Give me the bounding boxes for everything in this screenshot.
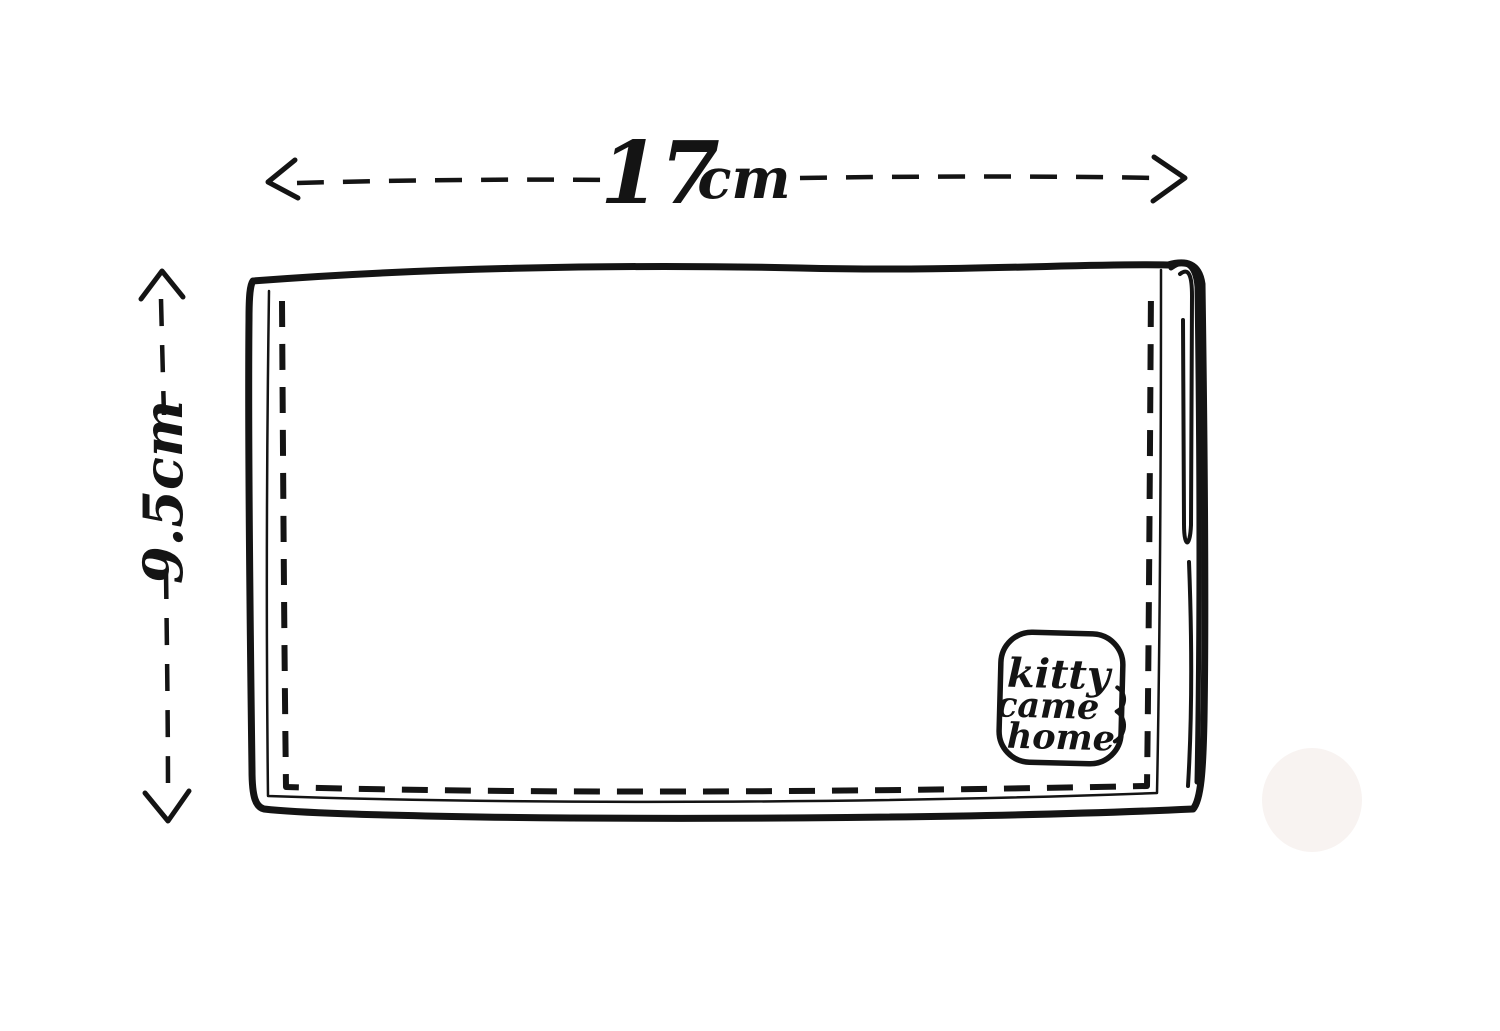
sketch-canvas: 17 cm 9.5cm kitty bbox=[0, 0, 1500, 1031]
logo-word-3: home bbox=[1006, 716, 1115, 760]
width-dimension-line: 17 cm bbox=[268, 123, 1185, 224]
arrow-up-icon bbox=[141, 271, 183, 299]
height-dimension-line: 9.5cm bbox=[131, 271, 195, 821]
height-dash-top-segment bbox=[161, 299, 164, 415]
wallet-dimension-diagram: 17 cm 9.5cm kitty bbox=[0, 0, 1500, 1031]
width-unit-label: cm bbox=[697, 146, 790, 212]
fold-crease-loop bbox=[1180, 272, 1192, 543]
width-dash-left-segment bbox=[297, 180, 612, 183]
arrow-down-icon bbox=[145, 791, 189, 821]
fold-crease-lower bbox=[1188, 562, 1191, 786]
height-value-label: 9.5cm bbox=[131, 400, 195, 584]
logo-badge: kitty came home bbox=[995, 631, 1127, 764]
width-dash-right-segment bbox=[800, 177, 1157, 179]
scan-smudge bbox=[1262, 748, 1362, 852]
height-dash-bottom-segment bbox=[166, 572, 168, 793]
arrow-right-icon bbox=[1153, 157, 1185, 201]
arrow-left-icon bbox=[268, 160, 298, 198]
